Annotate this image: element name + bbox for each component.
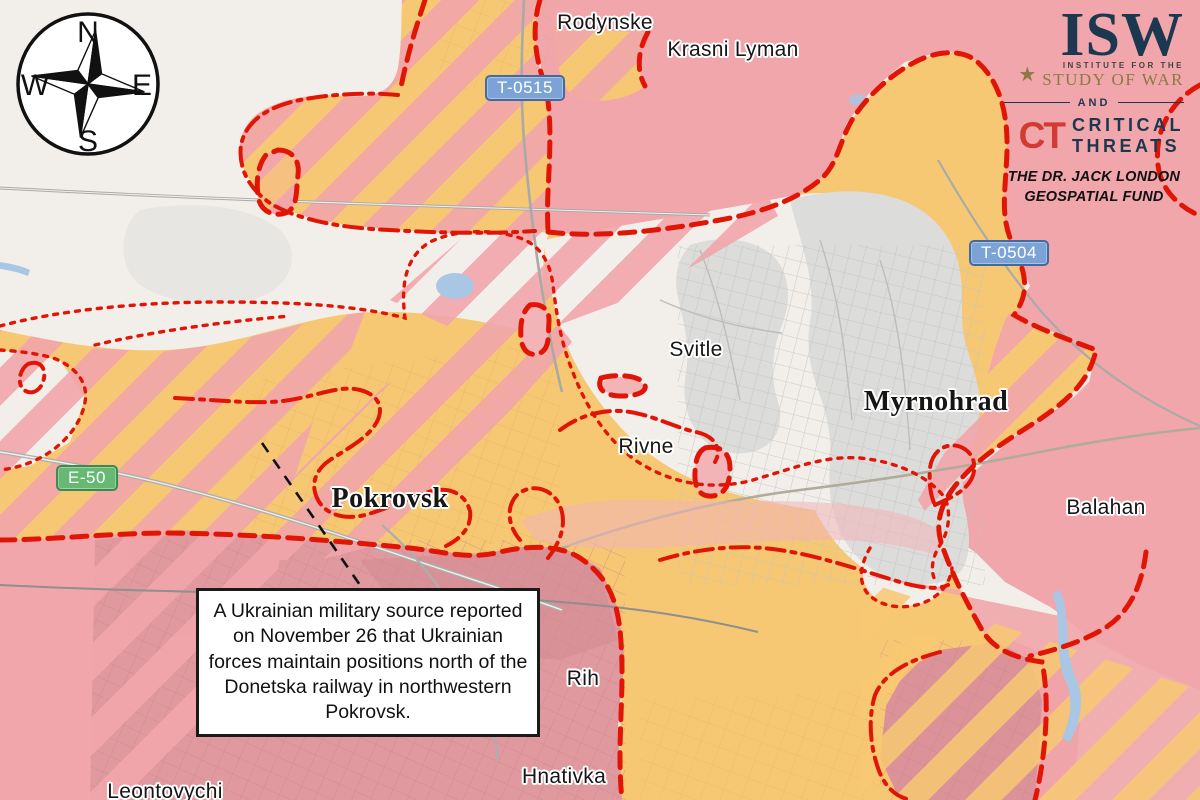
isw-star-icon: ★ xyxy=(1018,65,1036,85)
annotation-text: A Ukrainian military source reported on … xyxy=(209,600,528,723)
isw-study-of-war-text: STUDY OF WAR xyxy=(1042,70,1184,90)
town-label-leontovychi: Leontovychi xyxy=(107,780,222,800)
town-label-krasni-lyman: Krasni Lyman xyxy=(667,38,798,62)
road-shield-t0515: T-0515 xyxy=(485,75,565,101)
town-label-hnativka: Hnativka xyxy=(522,765,606,789)
town-label-rih: Rih xyxy=(567,667,599,691)
isw-wordmark: ISW xyxy=(1004,6,1184,65)
logo-and-divider: AND xyxy=(1004,97,1184,109)
critical-threats-ct-icon: CT xyxy=(1019,119,1064,152)
critical-text: CRITICAL xyxy=(1072,115,1184,136)
compass-west-label: W xyxy=(21,69,50,102)
compass-east-label: E xyxy=(132,69,152,102)
town-label-svitle: Svitle xyxy=(669,338,722,362)
city-label-pokrovsk: Pokrovsk xyxy=(331,483,448,515)
town-label-rodynske: Rodynske xyxy=(557,11,653,35)
road-shield-e50: E-50 xyxy=(56,465,118,491)
geospatial-fund-credit: THE DR. JACK LONDON GEOSPATIAL FUND xyxy=(1004,168,1184,207)
isw-institute-text: INSTITUTE FOR THE xyxy=(1042,61,1184,70)
fund-line-1: THE DR. JACK LONDON xyxy=(1004,168,1184,188)
compass-south-label: S xyxy=(78,125,98,158)
town-label-balahan: Balahan xyxy=(1066,496,1145,520)
fund-line-2: GEOSPATIAL FUND xyxy=(1004,188,1184,208)
logo-and-text: AND xyxy=(1078,97,1111,109)
threats-text: THREATS xyxy=(1072,136,1184,157)
compass-rose-icon: N S E W xyxy=(14,10,164,160)
compass-north-label: N xyxy=(77,16,99,49)
city-label-myrnohrad: Myrnohrad xyxy=(864,386,1009,418)
map-canvas: N S E W Rodynske Krasni Lyman Svitle Riv… xyxy=(0,0,1200,800)
town-label-rivne: Rivne xyxy=(618,435,673,459)
annotation-box: A Ukrainian military source reported on … xyxy=(196,588,540,737)
road-shield-t0504: T-0504 xyxy=(969,240,1049,266)
isw-ct-logo: ISW ★ INSTITUTE FOR THE STUDY OF WAR AND… xyxy=(1004,6,1184,207)
